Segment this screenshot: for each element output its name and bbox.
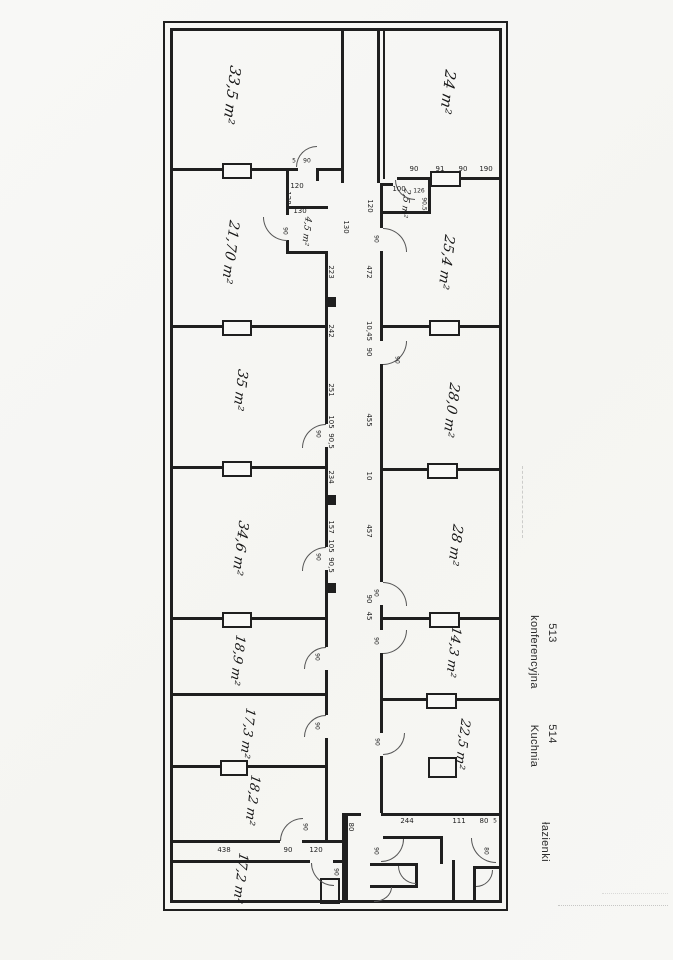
dim-corridor-right: 10 (365, 472, 373, 481)
dim-top-right: 190 (479, 165, 492, 173)
dim-corridor-left: 223 (327, 265, 335, 278)
dim-door-width: 90 (314, 653, 321, 661)
wall (473, 866, 501, 869)
door-arc (476, 870, 493, 887)
wall (316, 168, 319, 181)
dim-bath: 244 (400, 817, 413, 825)
wall (440, 836, 443, 864)
room-area-label: 35 m² (230, 368, 251, 412)
wall-vent (429, 320, 460, 336)
scan-noise-line (558, 905, 668, 906)
room-area-label: 24 m² (436, 68, 459, 116)
dim-bath: 80 (480, 817, 489, 825)
room-area-label: 25,4 m² (435, 233, 457, 291)
dim-corridor-right: 457 (365, 524, 373, 537)
room-area-label: 18,2 m² (242, 773, 263, 827)
door-arc (383, 733, 405, 755)
room-area-label: 33,5 m² (220, 64, 245, 126)
dim-bath: 80 (347, 823, 355, 832)
room-area-label: 21,70 m² (218, 219, 241, 286)
dim-corridor-left: 105 (327, 415, 335, 428)
dim-top-right: 90 (459, 165, 468, 173)
wall (341, 31, 344, 183)
dim-vestibule: 120 (290, 182, 303, 190)
dim-corridor-left: 157 (327, 520, 335, 533)
dim-top-right: 90 (410, 165, 419, 173)
room-name-kuchnia: Kuchnia (528, 725, 540, 768)
room-area-label: 4,5 m² (299, 215, 312, 246)
room-area-label: 18,9 m² (227, 633, 248, 687)
dim-door-width: 90 (394, 356, 401, 364)
door-arc (383, 228, 407, 252)
wall-vent (426, 693, 457, 709)
wall (286, 251, 328, 254)
dim-bath: 111 (452, 817, 465, 825)
wall (316, 168, 344, 171)
dim-door-width: 90 (314, 722, 321, 730)
room-area-label: 14,3 m² (443, 625, 464, 679)
wall (377, 31, 380, 183)
scan-noise-line (602, 893, 668, 894)
wall (170, 28, 502, 31)
door-arc (311, 863, 334, 886)
dim-corridor-left: 90,5 (327, 557, 335, 573)
dim-door-width: 90 (315, 553, 322, 561)
dim-corridor-right: 472 (365, 265, 373, 278)
wall (380, 653, 383, 733)
wall-vent (429, 612, 460, 628)
wall-vent (222, 320, 252, 336)
room-number-513: 513 (546, 623, 558, 643)
wall (163, 21, 165, 911)
dim-corridor-left: 90,5 (327, 433, 335, 449)
wall (172, 693, 328, 696)
door-arc (383, 582, 407, 606)
dim-corridor-left: 130 (342, 220, 350, 233)
wall (325, 738, 328, 842)
room-area-label: 28,0 m² (440, 381, 462, 439)
wall (286, 206, 328, 209)
wall-pilaster (328, 297, 336, 307)
dim-door-width: 90 (333, 868, 340, 876)
window (430, 171, 461, 187)
dim-closet: 126 (413, 188, 424, 195)
dim-corridor-right: 120 (366, 199, 374, 212)
dim-door-width: 90 (373, 637, 380, 645)
wall-pilaster (328, 583, 336, 593)
room-area-label: 17,3 m² (237, 706, 258, 760)
dim-corridor-left: 105 (327, 539, 335, 552)
dim-corridor-right: 10,45 (365, 321, 373, 341)
wall (380, 364, 383, 582)
wall (163, 21, 508, 23)
wall (452, 860, 455, 903)
wall (383, 31, 385, 179)
room-area-label: 28 m² (445, 523, 466, 567)
dim-closet: 90,5 (421, 197, 428, 210)
wall-vent (222, 461, 252, 477)
wall (172, 840, 280, 843)
dim-door-width: 90 (373, 847, 380, 855)
door-arc (381, 839, 404, 862)
wall-vent (222, 612, 252, 628)
dim-corridor-right: 455 (365, 413, 373, 426)
dim-door-width: 80 (483, 847, 490, 855)
wall-pilaster (328, 495, 336, 505)
dim-corridor-left: 234 (327, 470, 335, 483)
dim-corridor-left: 242 (327, 324, 335, 337)
room-name-lazienki: łazienki (539, 822, 551, 862)
dim-door-width: 90 (315, 430, 322, 438)
dim-top-right: 91 (436, 165, 445, 173)
room-area-label: 34,6 m² (229, 519, 251, 577)
wall (163, 909, 508, 911)
wall (381, 813, 502, 816)
wall (325, 570, 328, 647)
dim-closet: 100 (392, 185, 405, 193)
wall (380, 756, 383, 813)
room-number-514: 514 (546, 724, 558, 744)
wall (380, 183, 393, 186)
dim-corridor-right: 90 (365, 348, 373, 357)
wall-vent (220, 760, 248, 776)
dim-door-width: 90 (302, 823, 309, 831)
room-area-label: 22,5 m² (452, 717, 473, 771)
wall (499, 28, 502, 903)
faded-handwriting-artifact (522, 466, 523, 538)
wall (302, 840, 345, 843)
room-name-konferencyjna: konferencyjna (528, 615, 540, 689)
dim-door: 5 (292, 158, 296, 165)
dim-vestibule: 128 (284, 191, 292, 204)
dim-bath: 5 (493, 818, 497, 825)
dim-vestibule: 130 (293, 207, 306, 215)
wall-vent (427, 463, 458, 479)
floor-plan-scan: 33,5 m² 24 m² 21,70 m² 4,5 m² 2,5 m² 25,… (0, 0, 673, 960)
dim-bottom: 120 (309, 846, 322, 854)
wall (506, 21, 508, 911)
door-arc (280, 818, 303, 841)
dim-door-width: 90 (374, 738, 381, 746)
door-arc (383, 630, 407, 654)
wall (380, 183, 383, 228)
dim-door: 90 (303, 158, 311, 165)
dim-corridor-left: 251 (327, 383, 335, 396)
wall-vent (222, 163, 252, 179)
dim-corridor-right: 45 (365, 612, 373, 621)
dim-bottom: 438 (217, 846, 230, 854)
wall (172, 765, 328, 768)
dim-vestibule: 90 (282, 227, 289, 235)
dim-bottom: 90 (284, 846, 293, 854)
dim-door-width: 90 (373, 589, 380, 597)
dim-door-width: 90 (373, 235, 380, 243)
door-arc (398, 866, 416, 884)
